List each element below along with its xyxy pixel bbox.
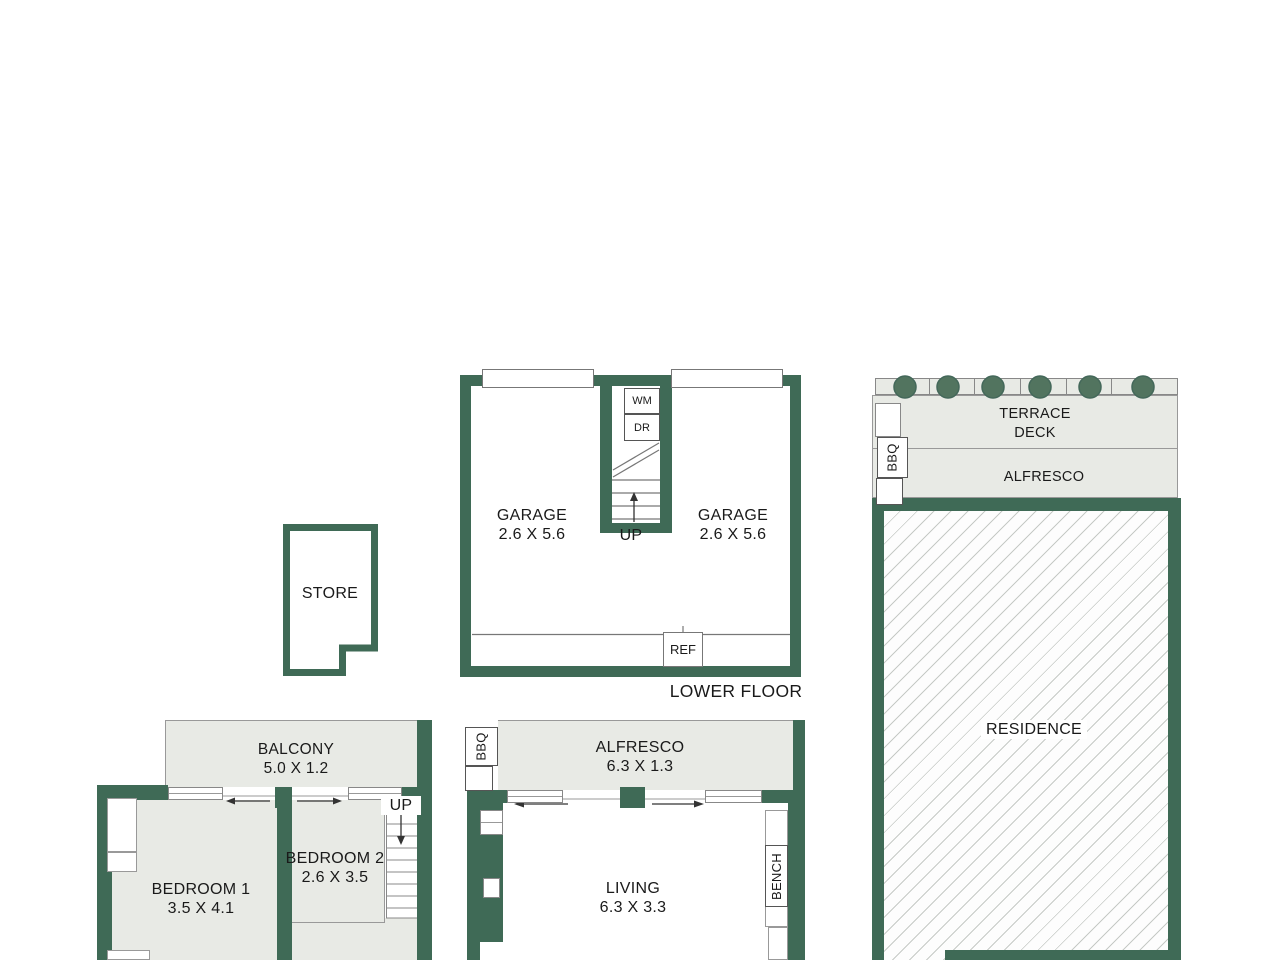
room-dims: 3.5 X 4.1 — [121, 899, 281, 918]
garage-door-right — [671, 369, 783, 388]
room-dims: 2.6 X 5.6 — [472, 525, 592, 544]
garage-left-label: GARAGE 2.6 X 5.6 — [472, 506, 592, 544]
up-label-bedroom: UP — [381, 796, 421, 815]
room-dims: 5.0 X 1.2 — [216, 759, 376, 778]
residence-bottom-wall — [945, 950, 1181, 960]
terrace-line: TERRACE — [900, 405, 1170, 424]
room-name: LIVING — [553, 879, 713, 898]
fridge-label: REF — [670, 642, 696, 657]
terrace-alfresco-divider — [872, 448, 1178, 449]
garage-right-label: GARAGE 2.6 X 5.6 — [673, 506, 793, 544]
living-left-wall-outer — [467, 803, 480, 960]
living-left-window-cutout — [480, 810, 503, 835]
balcony-label: BALCONY 5.0 X 1.2 — [216, 740, 376, 778]
terrace-deck-label: TERRACE DECK — [900, 405, 1170, 443]
sink-box-main — [465, 766, 493, 791]
room-dims: 2.6 X 5.6 — [673, 525, 793, 544]
living-door-post — [620, 787, 645, 808]
bbq-box-terrace: BBQ — [877, 437, 908, 478]
bedroom1-window — [168, 787, 223, 800]
lower-floor-title: LOWER FLOOR — [636, 682, 836, 701]
room-name: GARAGE — [472, 506, 592, 525]
dryer-label: DR — [634, 422, 650, 434]
terrace-left-box — [875, 403, 901, 437]
bench-counter-lower — [768, 927, 788, 960]
fridge-box: REF — [663, 632, 703, 667]
planter-strip — [875, 378, 1178, 395]
deck-line: DECK — [900, 424, 1170, 443]
room-dims: 6.3 X 1.3 — [560, 757, 720, 776]
robe-box-1 — [107, 798, 137, 852]
floorplan-canvas: WM DR UP GARAGE 2.6 X 5.6 GARAGE 2.6 X 5… — [0, 0, 1280, 960]
residence-right-wall — [1168, 511, 1181, 960]
balcony-door-post — [275, 787, 292, 808]
room-dims: 6.3 X 3.3 — [553, 898, 713, 917]
washing-machine-box: WM — [624, 388, 660, 414]
bbq-label: BBQ — [885, 443, 900, 471]
garage-door-left — [482, 369, 594, 388]
bbq-label: BBQ — [474, 732, 489, 760]
alfresco-right-wall — [793, 720, 805, 793]
bedroom-stairs-down-arrow — [397, 814, 405, 845]
residence-left-wall — [872, 511, 884, 960]
living-top-wall-left — [467, 790, 507, 803]
bbq-box-main: BBQ — [465, 727, 498, 766]
room-dims: 2.6 X 3.5 — [255, 868, 415, 887]
living-label: LIVING 6.3 X 3.3 — [553, 879, 713, 917]
room-name: RESIDENCE — [981, 720, 1087, 739]
robe-box-2 — [107, 852, 137, 872]
room-name: ALFRESCO — [560, 738, 720, 757]
room-name: BEDROOM 2 — [255, 849, 415, 868]
up-label-garage: UP — [611, 526, 651, 545]
room-name: GARAGE — [673, 506, 793, 525]
alfresco-main-label: ALFRESCO 6.3 X 1.3 — [560, 738, 720, 776]
living-left-niche — [483, 878, 500, 898]
alfresco-side-label: ALFRESCO — [909, 468, 1179, 487]
living-right-wall — [788, 793, 805, 960]
room-name: BALCONY — [216, 740, 376, 759]
hall-area — [385, 918, 417, 960]
robe-box-3 — [107, 950, 150, 960]
sink-box-terrace — [876, 478, 903, 505]
residence-label: RESIDENCE — [934, 720, 1134, 739]
residence-top-wall — [872, 498, 1181, 511]
living-window-left — [507, 790, 563, 803]
bedroom-block-right-wall — [417, 720, 432, 960]
bench-label: BENCH — [769, 852, 784, 899]
bedroom2-label: BEDROOM 2 2.6 X 3.5 — [255, 849, 415, 887]
washer-label: WM — [632, 395, 652, 407]
store-label: STORE — [280, 584, 380, 603]
bench-box: BENCH — [765, 845, 788, 907]
living-window-right — [705, 790, 762, 803]
dryer-box: DR — [624, 414, 660, 441]
